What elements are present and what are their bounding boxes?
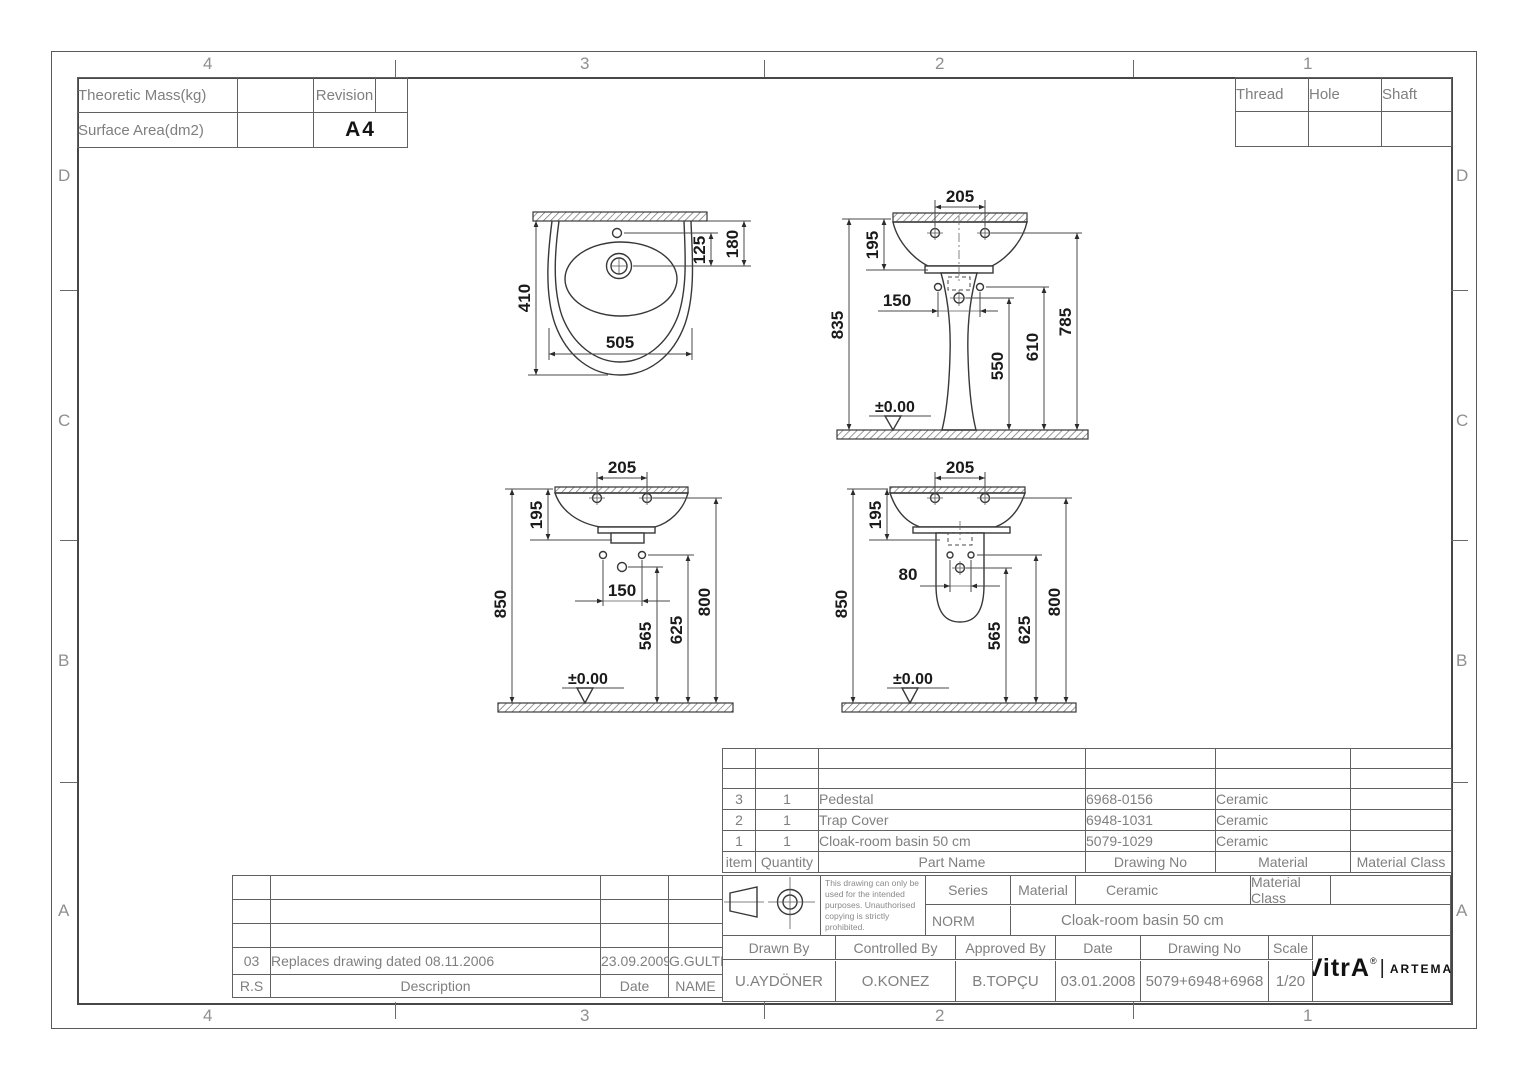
part-name: Trap Cover (819, 810, 1086, 831)
dim-label-205: 205 (946, 187, 974, 206)
revision-footer-name: NAME (669, 975, 723, 998)
revision-footer-date: Date (601, 975, 669, 998)
scale-value: 1/20 (1269, 961, 1313, 1001)
shaft-header: Shaft (1382, 78, 1452, 112)
scale-label: Scale (1269, 936, 1313, 960)
thread-value (1236, 112, 1309, 147)
disclaimer-cell: This drawing can only be used for the in… (821, 876, 926, 935)
table-row: 2 1 Trap Cover 6948-1031 Ceramic (723, 810, 1452, 831)
table-row: 3 1 Pedestal 6968-0156 Ceramic (723, 789, 1452, 810)
dim-label-505: 505 (606, 333, 634, 352)
empty-cell (1086, 749, 1216, 769)
trap-cover (936, 533, 984, 622)
controlled-by-label: Controlled By (836, 936, 956, 960)
drawn-by-value: U.AYDÖNER (723, 961, 836, 1001)
table-row (233, 924, 723, 948)
view-side-wall: 205 195 850 150 565 625 800 ±0.00 (491, 458, 733, 712)
theoretic-mass-label: Theoretic Mass(kg) (78, 78, 238, 113)
dim-label-195: 195 (866, 501, 885, 529)
table-row: 1 1 Cloak-room basin 50 cm 5079-1029 Cer… (723, 831, 1452, 852)
basin-base (913, 527, 1010, 533)
empty-cell (233, 876, 271, 900)
basin-base (598, 527, 655, 533)
material-class-value (1331, 876, 1451, 905)
registered-icon: ® (1370, 956, 1377, 966)
dim-label-205: 205 (946, 458, 974, 477)
revision-history-table: 03 Replaces drawing dated 08.11.2006 23.… (232, 875, 723, 998)
mass-area-table: Theoretic Mass(kg) Revision Surface Area… (77, 77, 408, 148)
dim-label-835: 835 (828, 311, 847, 339)
hole-header: Hole (1309, 78, 1382, 112)
empty-cell (669, 900, 723, 924)
header-material: Material (1216, 852, 1351, 873)
empty-cell (233, 900, 271, 924)
paper-format: A4 (345, 118, 376, 141)
supply-hole (639, 552, 646, 559)
dim-label-195: 195 (863, 231, 882, 259)
empty-cell (669, 876, 723, 900)
basin-rim (893, 213, 1027, 222)
table-row: 03 Replaces drawing dated 08.11.2006 23.… (233, 948, 723, 975)
view-plan: 410 505 125 180 (515, 212, 751, 375)
part-material-class (1351, 831, 1452, 852)
dim-label-150: 150 (608, 581, 636, 600)
approved-by-label: Approved By (956, 936, 1056, 960)
dim-label-150: 150 (883, 291, 911, 310)
datum-label: ±0.00 (568, 671, 608, 688)
table-row (723, 749, 1452, 769)
tap-hole (613, 229, 622, 238)
supply-hole (935, 284, 942, 291)
part-qty: 1 (756, 831, 819, 852)
header-quantity: Quantity (756, 852, 819, 873)
part-name: Cloak-room basin 50 cm (819, 831, 1086, 852)
part-item: 1 (723, 831, 756, 852)
drawing-no-value: 5079+6948+6968 (1141, 961, 1269, 1001)
drawing-no-label: Drawing No (1141, 936, 1269, 960)
empty-cell (271, 876, 601, 900)
datum-triangle (577, 688, 593, 703)
table-row (233, 876, 723, 900)
shaft-value (1382, 112, 1452, 147)
part-material: Ceramic (1216, 789, 1351, 810)
supply-hole (977, 284, 984, 291)
waste-hole (618, 563, 627, 572)
part-material-class (1351, 789, 1452, 810)
header-part-name: Part Name (819, 852, 1086, 873)
empty-cell (1216, 769, 1351, 789)
dim-label-205: 205 (608, 458, 636, 477)
dim-label-565: 565 (636, 622, 655, 650)
dim-label-625: 625 (667, 616, 686, 644)
norm-label: NORM (926, 906, 1011, 935)
artema-wordmark: ARTEMA (1390, 962, 1451, 976)
table-header-row: item Quantity Part Name Drawing No Mater… (723, 852, 1452, 873)
empty-cell (819, 749, 1086, 769)
basin-rim (555, 487, 688, 493)
disclaimer-text: This drawing can only be used for the in… (821, 876, 925, 935)
part-drawing-no: 5079-1029 (1086, 831, 1216, 852)
empty-cell (756, 769, 819, 789)
basin-rim (890, 487, 1025, 493)
empty-cell (723, 769, 756, 789)
parts-list-table: 3 1 Pedestal 6968-0156 Ceramic 2 1 Trap … (722, 748, 1452, 873)
dim-label-195: 195 (527, 501, 546, 529)
empty-cell (271, 900, 601, 924)
theoretic-mass-value (238, 78, 314, 113)
dim-label-80: 80 (899, 565, 918, 584)
approved-by-value: B.TOPÇU (956, 961, 1056, 1001)
empty-cell (1086, 769, 1216, 789)
revision-date: 23.09.2009 (601, 948, 669, 975)
floor-section (842, 703, 1076, 712)
floor-section (498, 703, 733, 712)
revision-label: Revision (314, 78, 376, 113)
view-front-pedestal: 205 195 835 150 550 610 785 ±0.00 (828, 187, 1088, 439)
supply-hole (600, 552, 607, 559)
drawn-by-label: Drawn By (723, 936, 836, 960)
revision-footer-rev: R.S (233, 975, 271, 998)
datum-label: ±0.00 (875, 399, 915, 416)
material-class-label: Material Class (1251, 876, 1331, 905)
revision-footer-description: Description (271, 975, 601, 998)
part-drawing-no: 6968-0156 (1086, 789, 1216, 810)
dim-label-180: 180 (723, 230, 742, 258)
dim-label-850: 850 (491, 590, 510, 618)
thread-header: Thread (1236, 78, 1309, 112)
dim-label-410: 410 (515, 284, 534, 312)
part-material-class (1351, 810, 1452, 831)
part-name: Pedestal (819, 789, 1086, 810)
revision-value (376, 78, 408, 113)
empty-cell (1351, 769, 1452, 789)
dim-label-800: 800 (1045, 588, 1064, 616)
material-label: Material (1011, 876, 1076, 905)
table-row (233, 900, 723, 924)
revision-name: G.GULTER (669, 948, 723, 975)
dim-label-850: 850 (832, 590, 851, 618)
date-label: Date (1056, 936, 1141, 960)
empty-cell (233, 924, 271, 948)
vitra-artema-logo: VitrA®|ARTEMA® (1313, 954, 1451, 983)
empty-cell (756, 749, 819, 769)
revision-description: Replaces drawing dated 08.11.2006 (271, 948, 601, 975)
dim-label-610: 610 (1023, 333, 1042, 361)
dim-label-565: 565 (985, 622, 1004, 650)
part-item: 2 (723, 810, 756, 831)
title-block-mid: This drawing can only be used for the in… (722, 875, 1451, 936)
surface-area-label: Surface Area(dm2) (78, 113, 238, 148)
empty-cell (1351, 749, 1452, 769)
empty-cell (819, 769, 1086, 789)
dim-label-785: 785 (1056, 308, 1075, 336)
surface-area-value (238, 113, 314, 148)
part-qty: 1 (756, 810, 819, 831)
empty-cell (601, 924, 669, 948)
part-material: Ceramic (1216, 810, 1351, 831)
floor-section (837, 430, 1088, 439)
dim-label-800: 800 (695, 588, 714, 616)
product-name: Cloak-room basin 50 cm (1011, 906, 1451, 935)
revision-number: 03 (233, 948, 271, 975)
empty-cell (723, 749, 756, 769)
controlled-by-value: O.KONEZ (836, 961, 956, 1001)
series-label: Series (926, 876, 1011, 905)
view-side-trap: 205 195 850 80 565 625 800 ±0.00 (832, 458, 1076, 712)
drawing-sheet: 4 3 2 1 4 3 2 1 D C B A D C B A (0, 0, 1528, 1080)
hole-value (1309, 112, 1382, 147)
brand-logo-cell: VitrA®|ARTEMA® (1313, 936, 1451, 1001)
empty-cell (601, 900, 669, 924)
dim-label-625: 625 (1015, 616, 1034, 644)
empty-cell (1216, 749, 1351, 769)
part-item: 3 (723, 789, 756, 810)
datum-triangle (885, 416, 901, 430)
title-block-bottom: Drawn By Controlled By Approved By Date … (722, 935, 1451, 1002)
dim-label-550: 550 (988, 352, 1007, 380)
drain-stub (611, 533, 644, 543)
header-item: item (723, 852, 756, 873)
empty-cell (601, 876, 669, 900)
datum-triangle (902, 688, 918, 703)
empty-cell (669, 924, 723, 948)
logo-divider: | (1380, 957, 1385, 980)
empty-cell (271, 924, 601, 948)
table-header-row: R.S Description Date NAME (233, 975, 723, 998)
basin-bowl (893, 222, 1027, 266)
dim-label-125: 125 (690, 236, 709, 264)
part-drawing-no: 6948-1031 (1086, 810, 1216, 831)
fit-table: Thread Hole Shaft (1235, 77, 1452, 147)
wall-section (533, 212, 707, 221)
projection-symbol-cell (723, 876, 821, 935)
table-row (723, 769, 1452, 789)
material-value: Ceramic (1076, 876, 1251, 905)
date-value: 03.01.2008 (1056, 961, 1141, 1001)
header-material-class: Material Class (1351, 852, 1452, 873)
datum-label: ±0.00 (893, 671, 933, 688)
vitra-wordmark: VitrA (1313, 954, 1370, 983)
part-qty: 1 (756, 789, 819, 810)
header-drawing-no: Drawing No (1086, 852, 1216, 873)
part-material: Ceramic (1216, 831, 1351, 852)
